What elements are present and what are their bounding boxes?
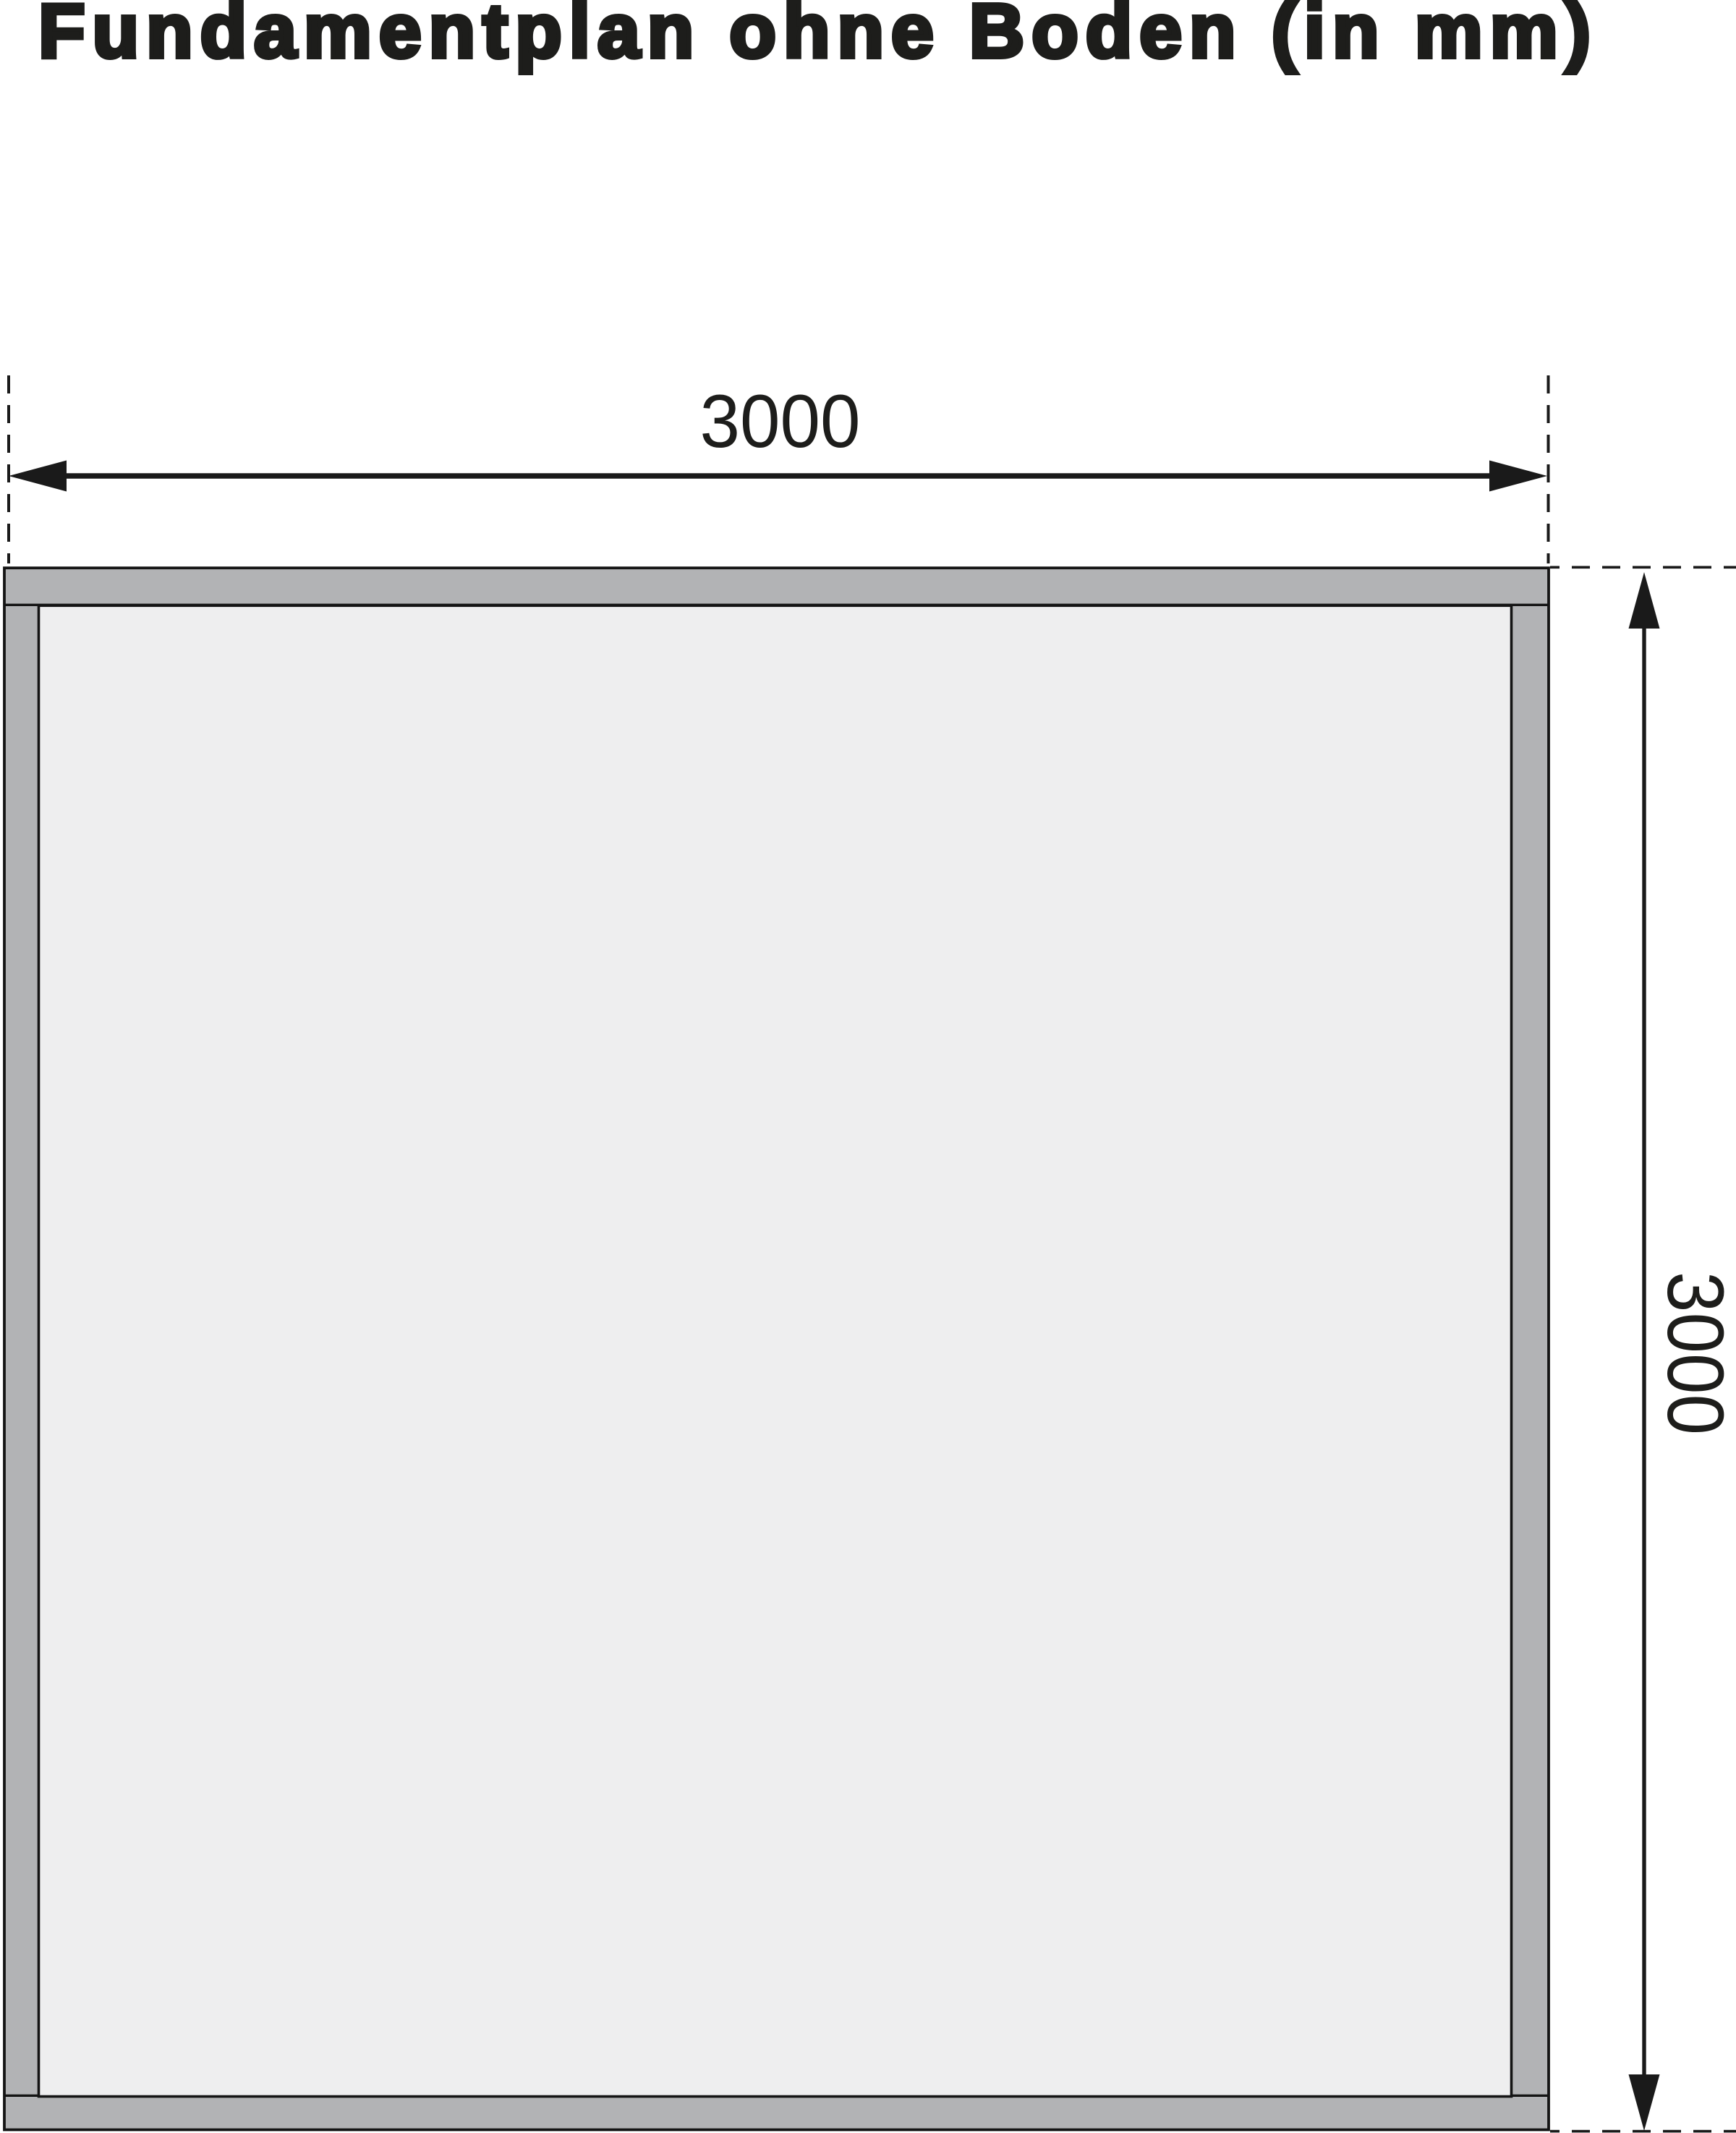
- svg-text:3000: 3000: [700, 380, 861, 464]
- svg-text:3000: 3000: [1651, 1272, 1736, 1435]
- svg-text:Fundamentplan ohne Boden (in m: Fundamentplan ohne Boden (in mm): [38, 0, 1591, 74]
